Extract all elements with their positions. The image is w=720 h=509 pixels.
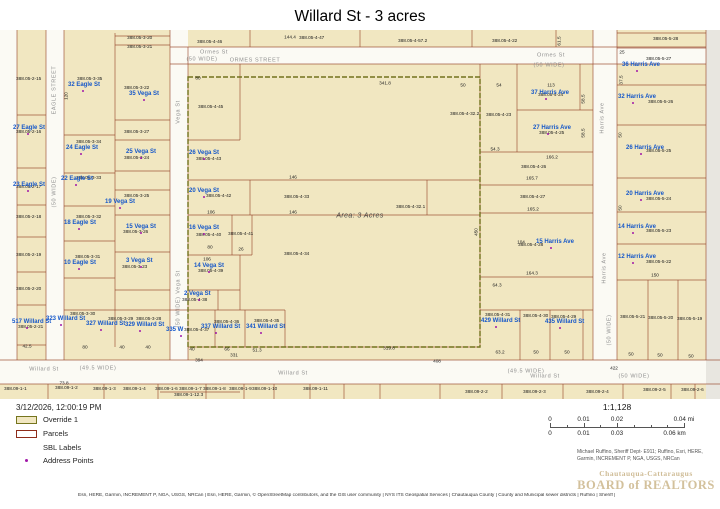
sbl-label: 388.05-5-27 — [646, 57, 671, 62]
street-label: (49.5 WIDE) — [80, 366, 117, 372]
address-label: 429 Willard St — [481, 318, 520, 324]
dimension-label: 40 — [145, 346, 150, 351]
sbl-label: 388.09-1-3 — [93, 387, 116, 392]
sbl-label: 388.05-5-19 — [677, 317, 702, 322]
address-label: 10 Eagle St — [64, 260, 96, 266]
address-label: 2 Vega St — [184, 291, 211, 297]
scale-label: 0.04 mi — [674, 416, 695, 423]
sbl-label: 388.05-4-30 — [523, 314, 548, 319]
dimension-label: 106 — [207, 211, 215, 216]
sbl-swatch-spacer — [16, 444, 37, 452]
sbl-label: 388.05-4-42 — [206, 194, 231, 199]
sbl-label: 388.05-4-33 — [284, 195, 309, 200]
street-label: (50 WIDE) — [533, 63, 564, 69]
sbl-label: 388.05-3-22 — [124, 86, 149, 91]
address-label: 32 Harris Ave — [618, 94, 656, 100]
sbl-label: 388.05-2-20 — [16, 287, 41, 292]
sbl-label: 388.05-3-28 — [136, 317, 161, 322]
sbl-label: 388.05-4-38 — [182, 298, 207, 303]
sbl-label: 388.09-1-2 — [55, 386, 78, 391]
address-label: 22 Eagle St — [61, 176, 93, 182]
sbl-label: 388.05-5-28 — [653, 37, 678, 42]
watermark-line1: Chautauqua-Cattaraugus — [575, 469, 717, 478]
area-label: Area: 3 Acres — [336, 213, 383, 220]
street-band — [0, 30, 17, 360]
sbl-label: 388.05-4-22 — [492, 39, 517, 44]
dimension-label: 450 — [475, 228, 480, 236]
legend-item-sbl-labels: SBL Labels — [16, 443, 81, 452]
address-label: 19 Vega St — [105, 199, 135, 205]
sbl-label: 388.05-4-26 — [521, 165, 546, 170]
sbl-label: 388.05-2-21 — [18, 325, 43, 330]
sbl-label: 388.05-3-25 — [124, 194, 149, 199]
scale-label: 0 — [548, 416, 552, 423]
sbl-label: 388.05-5-24 — [646, 197, 671, 202]
dimension-label: 165.7 — [526, 177, 538, 182]
scale-label: 0.06 km — [663, 430, 685, 437]
sbl-label: 388.09-2-5 — [643, 388, 666, 393]
dimension-label: 66 — [224, 348, 229, 353]
address-label: 15 Harris Ave — [536, 239, 574, 245]
dimension-label: 165.2 — [527, 208, 539, 213]
legend-item-override: Override 1 — [16, 415, 78, 424]
sbl-label: 388.05-4-34 — [284, 252, 309, 257]
legend-label-override: Override 1 — [43, 415, 78, 424]
address-label: 20 Vega St — [189, 188, 219, 194]
scale-label: 0 — [548, 430, 552, 437]
dimension-label: 80 — [195, 77, 200, 82]
address-label: 37 Harris Ave — [531, 90, 569, 96]
address-label: 20 Harris Ave — [626, 191, 664, 197]
address-label: 36 Harris Ave — [622, 62, 660, 68]
dimension-label: 50 — [460, 84, 465, 89]
sbl-label: 388.05-4-57.2 — [398, 39, 427, 44]
sbl-label: 388.05-4-40 — [196, 233, 221, 238]
sbl-label: 388.09-1-9 — [229, 387, 252, 392]
dimension-label: 64.3 — [492, 284, 501, 289]
sbl-label: 388.05-4-46 — [197, 40, 222, 45]
sbl-label: 388.05-4-35 — [254, 319, 279, 324]
sbl-label: 388.05-2-19 — [16, 253, 41, 258]
street-label: (50 WIDE) — [607, 314, 613, 345]
sbl-label: 388.05-4-31 — [485, 313, 510, 318]
sbl-label: 388.09-1-8 — [203, 387, 226, 392]
street-label: Willard St — [278, 371, 308, 377]
sbl-label: 388.05-3-20 — [127, 36, 152, 41]
dimension-label: 80 — [207, 246, 212, 251]
street-label: Willard St — [530, 374, 560, 380]
dimension-label: 146 — [289, 176, 297, 181]
dimension-label: 394 — [195, 359, 203, 364]
sbl-label: 388.05-4-32.2 — [450, 112, 479, 117]
sbl-label: 388.05-4-23 — [486, 113, 511, 118]
sbl-label: 388.09-1-7 — [179, 387, 202, 392]
sbl-label: 388.05-4-32.1 — [396, 205, 425, 210]
sbl-label: 388.05-4-27 — [520, 195, 545, 200]
dimension-label: 120 — [65, 92, 70, 100]
dimension-label: 54.3 — [490, 148, 499, 153]
legend-label-points: Address Points — [43, 456, 93, 465]
sbl-label: 388.05-2-15 — [16, 77, 41, 82]
dimension-label: 144.4 — [284, 36, 296, 41]
address-label: 3 Vega St — [126, 258, 153, 264]
address-label: 16 Vega St — [189, 225, 219, 231]
sbl-label: 388.09-2-4 — [586, 390, 609, 395]
dimension-label: 319.8 — [383, 347, 395, 352]
sbl-label: 388.05-5-22 — [646, 260, 671, 265]
sbl-label: 388.05-3-34 — [76, 140, 101, 145]
sbl-label: 388.05-2-18 — [16, 215, 41, 220]
address-label: 23 Eagle St — [13, 182, 45, 188]
sbl-label: 388.05-4-25 — [539, 131, 564, 136]
sbl-label: 388.05-5-26 — [648, 100, 673, 105]
sbl-label: 388.05-3-32 — [76, 215, 101, 220]
address-label: 26 Vega St — [189, 150, 219, 156]
dimension-label: 50 — [628, 353, 633, 358]
address-label: 12 Harris Ave — [618, 254, 656, 260]
dimension-label: 42.5 — [22, 345, 31, 350]
address-label: 14 Harris Ave — [618, 224, 656, 230]
dimension-label: 146 — [289, 211, 297, 216]
sbl-label: 388.09-1-1 — [4, 387, 27, 392]
address-label: 14 Vega St — [194, 263, 224, 269]
address-label: 35 Vega St — [129, 91, 159, 97]
dimension-label: 50 — [619, 132, 624, 137]
legend-label-parcels: Parcels — [43, 429, 68, 438]
street-label: ORMES STREET — [230, 58, 281, 64]
parcels-swatch — [16, 430, 37, 438]
scale-label: 0.01 — [577, 430, 589, 437]
sbl-label: 388.05-4-45 — [198, 105, 223, 110]
sbl-label: 388.09-1-11 — [303, 387, 328, 392]
dimension-label: 26 — [238, 248, 243, 253]
address-label: 15 Vega St — [126, 224, 156, 230]
address-label: 25 Vega St — [126, 149, 156, 155]
scale-label: 0.01 — [577, 416, 589, 423]
sbl-label: 388.05-4-41 — [228, 232, 253, 237]
dimension-label: 51.3 — [252, 349, 261, 354]
street-label: Ormes St — [537, 53, 565, 59]
sbl-label: 388.09-2-2 — [465, 390, 488, 395]
dimension-label: 50 — [619, 205, 624, 210]
street-label: Vega St — [176, 100, 182, 123]
sbl-label: 388.09-2-3 — [523, 390, 546, 395]
street-label: Vega St — [176, 270, 182, 293]
address-label: 32 Eagle St — [68, 82, 100, 88]
sbl-label: 388.09-1-10 — [252, 387, 277, 392]
dimension-label: 50 — [657, 354, 662, 359]
sbl-label: 388.05-3-26 — [123, 230, 148, 235]
address-label: 27 Harris Ave — [533, 125, 571, 131]
watermark: Chautauqua-Cattaraugus BOARD of REALTORS — [575, 469, 717, 493]
sbl-label: 388.09-1-6 — [155, 387, 178, 392]
legend-item-address-points: Address Points — [16, 456, 93, 465]
sbl-label: 388.05-3-24 — [124, 156, 149, 161]
street-label: Ormes St — [200, 50, 228, 56]
dimension-label: 408 — [433, 360, 441, 365]
dimension-label: 40 — [119, 346, 124, 351]
sbl-label: 388.05-3-21 — [127, 45, 152, 50]
sbl-label: 388.05-3-23 — [122, 265, 147, 270]
street-label: EAGLE STREET — [52, 66, 58, 115]
scale-label: 0.03 — [611, 430, 623, 437]
address-label: 335 W — [166, 327, 183, 333]
street-band — [0, 360, 720, 384]
dimension-label: 164.3 — [526, 272, 538, 277]
street-label: Willard St — [29, 367, 59, 373]
dimension-label: 61.5 — [558, 36, 563, 45]
address-label: 327 Willard St — [86, 321, 125, 327]
address-label: 337 Willard St — [201, 324, 240, 330]
dimension-label: 331 — [230, 354, 238, 359]
address-label: 435 Willard St — [545, 319, 584, 325]
dimension-label: 25 — [619, 51, 624, 56]
dimension-label: 80 — [82, 346, 87, 351]
street-band — [593, 30, 617, 360]
sbl-label: 388.05-3-27 — [124, 130, 149, 135]
dimension-label: 166.2 — [546, 156, 558, 161]
street-label: (50 WIDE) — [186, 57, 217, 63]
address-label: 27 Eagle St — [13, 125, 45, 131]
sbl-label: 388.09-1-4 — [123, 387, 146, 392]
sbl-label: 388.05-4-39 — [198, 269, 223, 274]
street-band — [706, 30, 720, 399]
timestamp: 3/12/2026, 12:00:19 PM — [16, 403, 101, 412]
dimension-label: 50 — [564, 351, 569, 356]
sbl-label: 388.09-2-6 — [681, 388, 704, 393]
watermark-line2: BOARD of REALTORS — [575, 478, 717, 493]
sbl-label: 388.05-5-21 — [620, 315, 645, 320]
scale-ratio: 1:1,128 — [550, 402, 684, 412]
dimension-label: 422 — [610, 367, 618, 372]
address-label: 18 Eagle St — [64, 220, 96, 226]
street-label: Harris Ave — [600, 102, 606, 133]
address-label: 341 Willard St — [246, 324, 285, 330]
sbl-label: 388.05-3-35 — [77, 77, 102, 82]
attribution: Esri, HERE, Garmin, INCREMENT P, NGA, US… — [78, 493, 718, 498]
sbl-label: 388.05-3-31 — [75, 255, 100, 260]
map-credits: Michael Ruffino, Sheriff Dept- E911; Ruf… — [577, 449, 705, 463]
street-label: (50 WIDE) — [52, 176, 58, 207]
dimension-label: 63.2 — [495, 351, 504, 356]
sbl-label: 388.05-4-47 — [299, 36, 324, 41]
dimension-label: 113 — [547, 84, 554, 89]
street-label: Harris Ave — [602, 252, 608, 283]
dimension-label: 58.5 — [582, 128, 587, 137]
dimension-label: 50 — [688, 355, 693, 360]
dimension-label: 54 — [496, 84, 501, 89]
scale-bar: 00.010.020.04 mi00.010.030.06 km — [550, 416, 684, 442]
sbl-label: 388.05-5-20 — [648, 316, 673, 321]
address-label: 323 Willard St — [46, 316, 85, 322]
legend-label-sbl: SBL Labels — [43, 443, 81, 452]
dimension-label: 50 — [533, 351, 538, 356]
address-label: 26 Harris Ave — [626, 145, 664, 151]
sbl-label: 388.09-1-12.3 — [174, 393, 203, 398]
dimension-label: 341.8 — [379, 82, 391, 87]
legend-item-parcels: Parcels — [16, 429, 68, 438]
dimension-label: 106 — [203, 258, 211, 263]
street-label: (50 WIDE) — [618, 374, 649, 380]
dimension-label: 150 — [651, 274, 659, 279]
override-swatch — [16, 416, 37, 424]
dimension-label: 40 — [189, 348, 194, 353]
scale-label: 0.02 — [611, 416, 623, 423]
address-label: 329 Willard St — [125, 322, 164, 328]
street-label: (50 WIDE) — [176, 296, 182, 327]
sbl-label: 388.05-4-43 — [196, 157, 221, 162]
dimension-label: 37.5 — [620, 75, 625, 84]
address-point-icon — [25, 459, 28, 462]
address-label: 24 Eagle St — [66, 145, 98, 151]
dimension-label: 58.5 — [582, 94, 587, 103]
